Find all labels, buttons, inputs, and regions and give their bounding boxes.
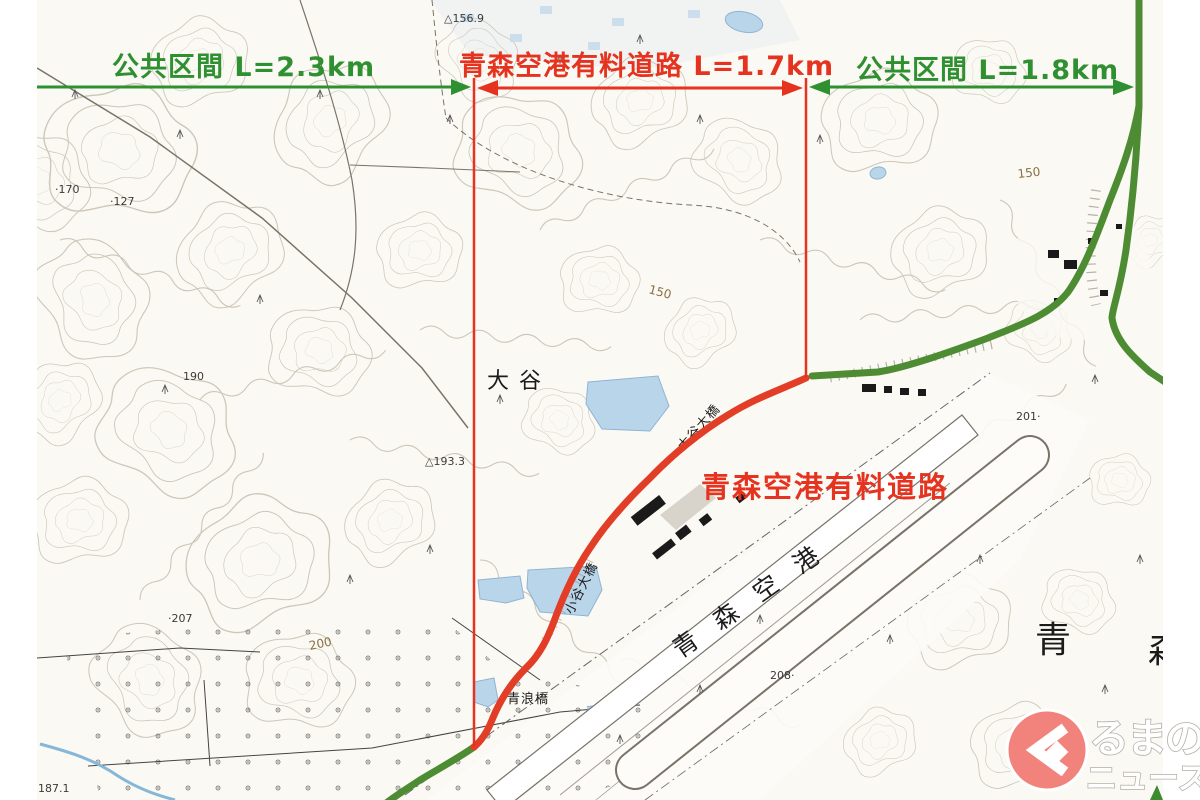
label-aomori-1: 青 [1035, 620, 1071, 661]
elev-207: ·207 [168, 612, 193, 625]
kuruma-news-logo: るまの ニュース [1007, 710, 1200, 800]
annotation-left-public-label: 公共区間 L=2.3km [112, 52, 375, 83]
label-otani: 大谷 [487, 369, 551, 394]
map-screenshot: 大谷 大谷大橋 小谷大橋 青浪橋 青森空港 青 森 △156.9 ·170 ·1… [0, 0, 1200, 800]
logo-circle [1007, 710, 1087, 790]
topographic-map: 大谷 大谷大橋 小谷大橋 青浪橋 青森空港 青 森 △156.9 ·170 ·1… [0, 0, 1200, 800]
logo-text-line2: ニュース [1086, 761, 1200, 797]
toll-road-name-label: 青森空港有料道路 [701, 470, 949, 504]
elev-156: △156.9 [444, 12, 484, 25]
elev-170: ·170 [55, 183, 80, 196]
label-aonami-bridge: 青浪橋 [507, 692, 549, 707]
elev-187: 187.1 [38, 782, 70, 795]
annotation-toll-road-label: 青森空港有料道路 L=1.7km [459, 50, 834, 82]
label-aomori-2: 森 [1148, 630, 1184, 671]
contour-150b: 150 [1017, 165, 1041, 181]
elev-193: △193.3 [425, 455, 465, 468]
elev-190: 190 [183, 370, 204, 383]
elev-127: ·127 [110, 195, 135, 208]
reservoir-pond [586, 376, 669, 431]
elev-208: 208· [770, 669, 795, 682]
logo-text-line1: るまの [1089, 716, 1200, 762]
annotation-right-public-label: 公共区間 L=1.8km [856, 55, 1119, 86]
elev-201: 201· [1016, 410, 1041, 423]
